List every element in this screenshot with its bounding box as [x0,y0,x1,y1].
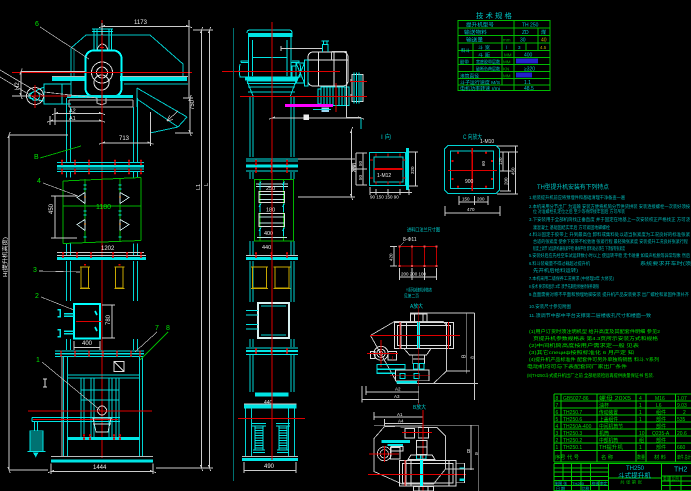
svg-text:电机功率转速 r/mi: 电机功率转速 r/mi [460,85,500,92]
svg-text:420: 420 [389,253,394,261]
svg-text:TH250.3: TH250.3 [563,431,582,437]
svg-text:5.安装好后应先经空车试运转数小时以上 使运转平稳 无卡碰撞: 5.安装好后应先经空车试运转数小时以上 使运转平稳 无卡碰撞 如噪声松脱等异常现… [529,252,690,259]
svg-text:A放大: A放大 [410,302,423,310]
svg-text:3.下安装用于全部机筒找正垂直度 并于固定在地基上一次安装校: 3.下安装用于全部机筒找正垂直度 并于固定在地基上一次安装校正严格找正 方可浇 [529,216,690,223]
svg-text:输送量: 输送量 [466,37,483,44]
svg-text:单件 总计: 单件 总计 [677,454,691,461]
svg-text:750: 750 [190,99,196,110]
svg-text:宽度胶带层数: 宽度胶带层数 [476,59,500,66]
svg-text:3: 3 [556,431,559,437]
svg-text:A4: A4 [398,419,404,424]
svg-text:4: 4 [639,396,642,402]
svg-text:TH250.7: TH250.7 [563,410,582,416]
svg-text:450: 450 [511,167,516,175]
svg-text:490: 490 [264,464,275,470]
svg-text:M16: M16 [655,396,665,402]
svg-text:页提升机参数规格表 第4.3页所示安装方式和规格: 页提升机参数规格表 第4.3页所示安装方式和规格 [533,335,659,342]
svg-text:8-Φ11: 8-Φ11 [403,237,417,243]
svg-text:比例: 比例 [582,485,589,491]
svg-text:4: 4 [556,424,559,430]
svg-text:1-M10: 1-M10 [480,139,494,145]
svg-text:组: 组 [639,437,644,444]
svg-text:校核 审定: 校核 审定 [592,480,608,486]
svg-text:713: 713 [119,136,130,142]
svg-text:1: 1 [639,417,642,423]
svg-text:程度上调节 试运转机器张紧平稳 确保平稳 卸料处必须在 下须: 程度上调节 试运转机器张紧平稳 确保平稳 卸料处必须在 下须留有张紧度 [533,245,625,252]
svg-text:8: 8 [166,325,170,332]
svg-text:GB5027-86: GB5027-86 [563,396,589,402]
svg-text:Y系列减速机参数表: Y系列减速机参数表 [406,287,432,294]
svg-text:灌混凝土 基础固结实牢后 方可紧固地脚螺栓: 灌混凝土 基础固结实牢后 方可紧固地脚螺栓 [533,224,610,231]
svg-text:48.5: 48.5 [524,86,534,92]
svg-text:组件: 组件 [656,409,666,416]
svg-text:A1: A1 [397,412,403,417]
svg-text:120: 120 [498,157,503,165]
svg-text:30: 30 [520,38,526,44]
svg-text:535: 535 [677,417,686,423]
svg-text:胶带: 胶带 [460,59,469,66]
svg-text:上盖组件: 上盖组件 [599,416,618,423]
svg-text:ZD: ZD [522,30,529,36]
svg-text:L1: L1 [196,184,202,190]
svg-text:名 称: 名 称 [601,454,613,461]
svg-text:(1)用户订货时须注明机型 给升高度及其配套件明细 参见2: (1)用户订货时须注明机型 给升高度及其配套件明细 参见2 [529,328,660,335]
svg-text:9.直面需要对称不平面和预埋地脚安装 提升机产品安装要求 出: 9.直面需要对称不平面和预埋地脚安装 提升机产品安装要求 出厂螺栓和紧固件须补齐 [529,291,689,298]
svg-text:KN: KN [503,67,509,72]
svg-text:1-M12: 1-M12 [377,173,391,179]
svg-text:2: 2 [556,438,559,444]
svg-text:9.03: 9.03 [677,403,687,409]
svg-text:部件: 部件 [656,444,666,451]
svg-text:输送物料: 输送物料 [464,29,487,36]
svg-text:1: 1 [556,445,559,451]
svg-text:4: 4 [37,178,41,185]
svg-text:11.须调节中部中平台支撑第二层楼板孔尺寸和楼面一致: 11.须调节中部中平台支撑第二层楼板孔尺寸和楼面一致 [529,312,651,319]
svg-text:1: 1 [36,357,40,364]
svg-text:系统要求开车时(须: 系统要求开车时(须 [640,260,691,267]
svg-text:40: 40 [541,38,547,44]
svg-text:7: 7 [556,403,559,409]
svg-text:进料口法兰尺寸图: 进料口法兰尺寸图 [407,227,440,234]
svg-text:中间机筒节: 中间机筒节 [599,423,623,430]
svg-text:TH250: TH250 [626,466,645,472]
svg-text:TH250A-400: TH250A-400 [563,424,592,430]
svg-text:斗 宽: 斗 宽 [478,44,491,51]
svg-text:400: 400 [82,341,93,347]
svg-text:1: 1 [639,403,642,409]
svg-text:20.6: 20.6 [677,431,687,437]
svg-text:合适的张紧度 使余下胶带不松弛驰 张紧行程 最轻微张紧度 安: 合适的张紧度 使余下胶带不松弛驰 张紧行程 最轻微张紧度 安装提升工况良好张紧行… [533,238,688,245]
svg-text:TH250.6: TH250.6 [563,417,582,423]
svg-text:3: 3 [33,267,37,274]
svg-text:煤: 煤 [541,29,546,36]
svg-text:提升机型号: 提升机型号 [466,22,494,29]
svg-text:10: 10 [639,431,645,437]
svg-text:900: 900 [465,179,474,185]
svg-text:(4)提升机产品标准件 配套件可另外单独购销售 料斗.Y系列: (4)提升机产品标准件 配套件可另外单独购销售 料斗.Y系列 [529,356,659,363]
svg-text:90 150 150 90: 90 150 150 90 [370,195,399,200]
svg-text:≥320: ≥320 [524,67,535,73]
svg-text:250: 250 [266,186,275,192]
svg-text:60: 60 [481,160,486,166]
svg-text:H(提升机高度): H(提升机高度) [1,237,9,277]
svg-text:TH型提升机安装有下列特点: TH型提升机安装有下列特点 [537,183,609,191]
svg-text:(3)其它специф按照标准化 6 月产定 知: (3)其它специф按照标准化 6 月产定 知 [529,349,635,356]
svg-text:7: 7 [155,325,159,332]
svg-text:油杯: 油杯 [599,402,609,409]
svg-text:见第二页: 见第二页 [404,293,419,300]
svg-text:50: 50 [358,160,363,166]
svg-text:L6: L6 [656,403,662,409]
svg-text:技术规格: 技术规格 [476,11,514,20]
svg-text:400: 400 [524,53,533,59]
svg-text:TH250.2: TH250.2 [563,438,582,444]
svg-text:200: 200 [351,164,356,172]
svg-text:a: a [475,451,478,457]
svg-text:TH提升机: TH提升机 [599,444,623,451]
svg-text:1: 1 [639,445,642,451]
svg-text:A2: A2 [395,387,401,392]
svg-text:1444: 1444 [93,465,107,471]
svg-text:破断负荷层数: 破断负荷层数 [476,66,500,73]
svg-text:1202: 1202 [101,246,115,252]
svg-text:450: 450 [49,203,55,214]
svg-text:2: 2 [683,410,686,416]
svg-text:部件: 部件 [656,437,666,444]
svg-text:320: 320 [410,166,415,174]
svg-text:部件: 部件 [656,423,666,430]
svg-text:螺母 20X5: 螺母 20X5 [599,395,631,402]
svg-text:200: 200 [477,197,485,202]
svg-text:MM: MM [503,74,511,79]
svg-text:A3: A3 [394,394,400,399]
svg-text:6: 6 [35,21,39,28]
svg-text:8.技术 要求和图示 3年 须予先期检修维修保养期限: 8.技术 要求和图示 3年 须予先期检修维修保养期限 [529,283,599,290]
svg-text:a: a [470,356,476,359]
svg-text:电动机均可与下表配套同厂家出厂条件: 电动机均可与下表配套同厂家出厂条件 [527,363,628,370]
svg-text:B放大: B放大 [413,403,426,411]
svg-text:斗 距: 斗 距 [478,53,491,58]
svg-text:1.07: 1.07 [677,396,687,402]
svg-text:重量 比例: 重量 比例 [663,475,679,481]
svg-text:10.安装尺寸参见附图: 10.安装尺寸参见附图 [529,303,571,310]
svg-text:数量: 数量 [637,454,645,461]
svg-text:I 向: I 向 [381,133,391,141]
svg-text:传动装置: 传动装置 [599,409,618,416]
svg-text:780: 780 [106,314,112,325]
svg-text:料斗: 料斗 [461,47,470,54]
svg-text:先开机后给料运转): 先开机后给料运转) [533,267,579,274]
svg-text:180: 180 [266,208,275,214]
svg-text:1: 1 [639,410,642,416]
svg-text:50: 50 [358,174,363,180]
svg-text:中部机筒: 中部机筒 [599,437,618,444]
svg-text:440: 440 [262,245,271,251]
svg-text:日 期: 日 期 [556,485,565,491]
svg-text:共 张 第 张: 共 张 第 张 [620,479,642,485]
svg-text:材 料: 材 料 [654,454,666,461]
svg-text:H2: H2 [15,82,21,90]
svg-text:470: 470 [467,207,475,212]
svg-text:TH 250: TH 250 [522,23,539,29]
svg-text:7.本机采用二级保养工况要求 (中修理3年 大修见): 7.本机采用二级保养工况要求 (中修理3年 大修见) [529,275,614,282]
svg-text:制图 张: 制图 张 [555,480,567,486]
svg-text:4.料斗固定于胶带上 升到最高位 卸料或集料处以适当张紧度为: 4.料斗固定于胶带上 升到最高位 卸料或集料处以适当张紧度为工况良好的标准张紧 [529,231,690,238]
svg-text:5: 5 [556,417,559,423]
svg-text:Q235-A: Q235-A [652,431,670,437]
svg-text:TH250.1: TH250.1 [563,445,582,451]
svg-text:l: l [506,45,507,50]
svg-text:机筒: 机筒 [599,430,609,437]
svg-text:TH2: TH2 [674,467,687,474]
svg-text:1.组装提升机前应将预埋件和基础清理干净备查一遍: 1.组装提升机前应将预埋件和基础清理干净备查一遍 [529,194,625,201]
svg-text:1173: 1173 [134,20,148,26]
svg-text:斗式提升机: 斗式提升机 [618,471,652,480]
svg-text:1180: 1180 [96,204,111,211]
svg-text:4.5: 4.5 [540,45,547,50]
svg-text:200: 200 [504,177,509,185]
svg-text:MM: MM [504,53,512,58]
svg-text:B: B [34,154,39,161]
svg-text:序号 代 号: 序号 代 号 [555,454,579,461]
svg-text:(8)TH250斗式提升机出厂之前 全部组装检验再提供质量保: (8)TH250斗式提升机出厂之前 全部组装检验再提供质量保证书 包装. [527,372,654,379]
svg-text:MM: MM [503,60,511,65]
svg-text:660: 660 [677,445,686,451]
svg-text:滚筒直径: 滚筒直径 [460,73,480,80]
svg-text:部件: 部件 [656,416,666,423]
svg-text:mm: mm [503,38,511,43]
svg-text:6: 6 [556,410,559,416]
svg-text:斗子运行速度 M/S: 斗子运行速度 M/S [460,79,500,86]
svg-text:位 对准螺栓孔定位之后 至少等待焊接牢固后 方可吊装: 位 对准螺栓孔定位之后 至少等待焊接牢固后 方可吊装 [533,208,625,215]
svg-text:8: 8 [556,396,559,402]
svg-text:(2)中间机筒高度按用户需求定一般 见表: (2)中间机筒高度按用户需求定一般 见表 [529,342,640,349]
svg-text:2: 2 [35,293,39,300]
svg-text:L: L [204,183,210,186]
svg-text:200 200 100: 200 200 100 [401,272,427,277]
svg-text:150: 150 [462,197,470,202]
svg-text:6.料斗装载量不得过载超过提升机: 6.料斗装载量不得过载超过提升机 [529,260,590,267]
